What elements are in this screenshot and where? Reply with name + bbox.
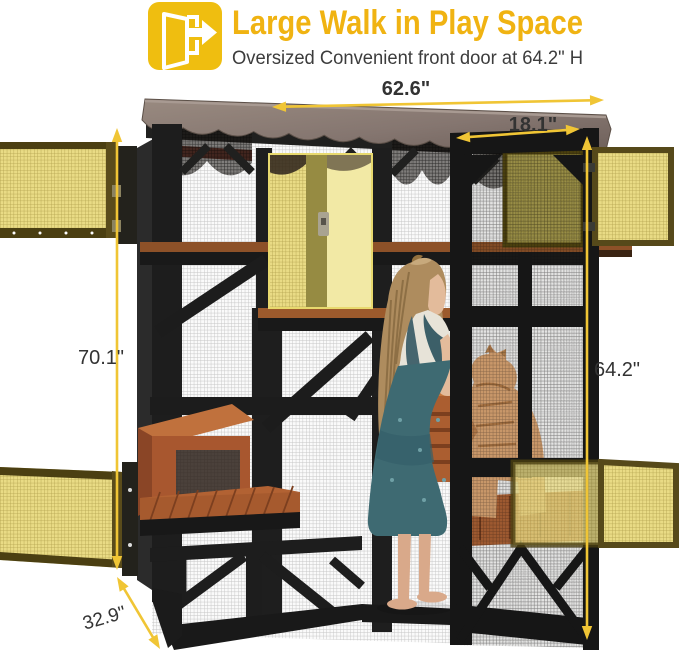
svg-text:18.1": 18.1" (509, 114, 557, 136)
svg-text:32.9": 32.9" (80, 602, 128, 634)
svg-text:70.1": 70.1" (78, 347, 124, 369)
svg-text:Oversized Convenient front doo: Oversized Convenient front door at 64.2"… (232, 48, 583, 69)
svg-text:62.6": 62.6" (382, 78, 430, 100)
svg-text:64.2": 64.2" (594, 359, 640, 381)
svg-text:Large Walk in Play Space: Large Walk in Play Space (232, 4, 583, 42)
